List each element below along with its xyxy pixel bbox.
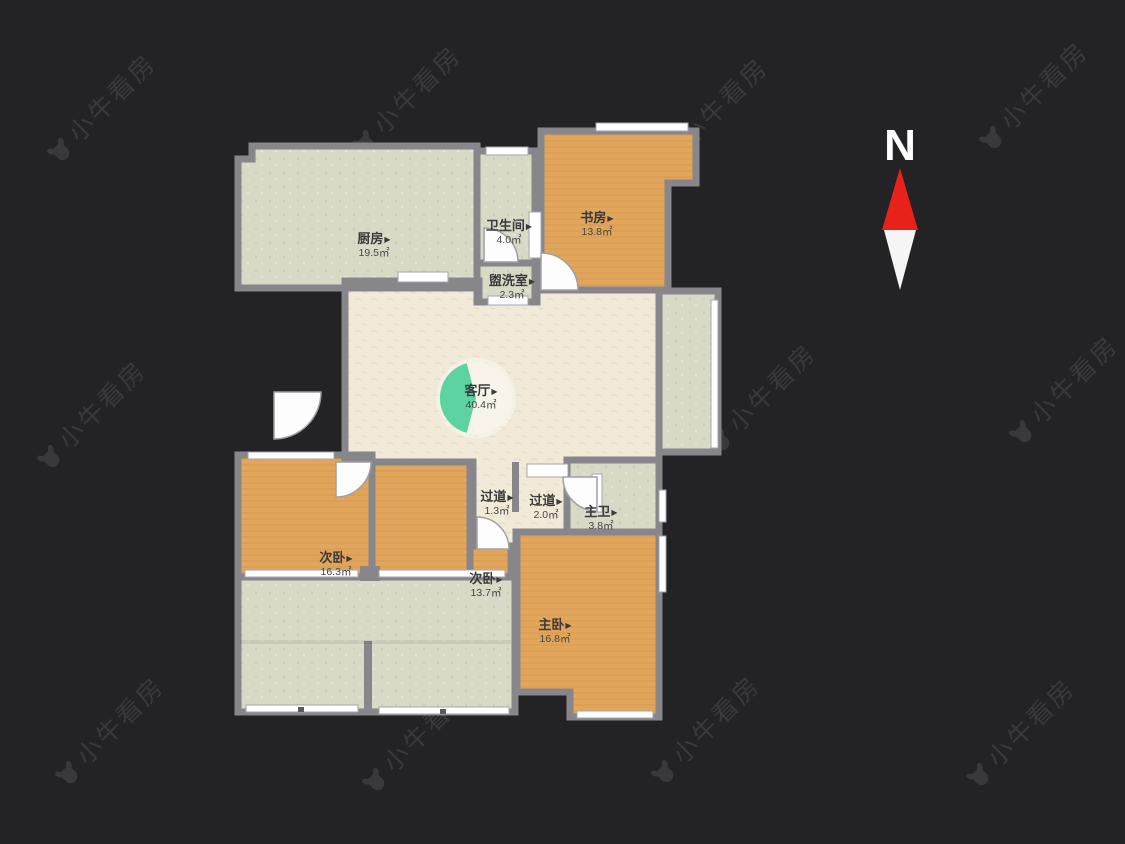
room-label-kitchen: 厨房▶ 19.5㎡	[357, 231, 390, 259]
room-label-washroom: 盥洗室▶ 2.3㎡	[489, 273, 535, 301]
room-label-living: 客厅▶ 40.4㎡	[464, 383, 497, 411]
window-handle	[298, 707, 304, 712]
wall-balcony-divider	[364, 641, 372, 714]
label-marker-icon: ▶	[611, 508, 617, 517]
label-marker-icon: ▶	[491, 387, 497, 396]
room-label-master-bath: 主卫▶ 3.8㎡	[584, 504, 617, 532]
room-east-balcony	[659, 291, 718, 452]
room-label-corridor-2: 过道▶ 2.0㎡	[529, 493, 562, 521]
room-label-study: 书房▶ 13.8㎡	[580, 210, 613, 238]
label-marker-icon: ▶	[526, 222, 532, 231]
label-marker-icon: ▶	[556, 497, 562, 506]
north-arrow	[882, 168, 918, 290]
room-label-corridor-1: 过道▶ 1.3㎡	[480, 489, 513, 517]
label-marker-icon: ▶	[496, 575, 502, 584]
floorplan-page: 小牛看房 小牛看房 小牛看房 小牛看房 小牛看房 小牛看房 小牛看房 小牛看房 …	[0, 0, 1125, 844]
floorplan-drawing	[0, 0, 1125, 844]
room-label-bedroom-left: 次卧▶ 16.3㎡	[319, 550, 352, 578]
label-marker-icon: ▶	[529, 277, 535, 286]
label-marker-icon: ▶	[384, 235, 390, 244]
entry-door	[274, 392, 321, 439]
label-marker-icon: ▶	[507, 493, 513, 502]
room-label-bathroom: 卫生间▶ 4.0㎡	[486, 218, 532, 246]
balcony-floor-line	[240, 640, 511, 644]
label-marker-icon: ▶	[565, 621, 571, 630]
window-handle	[440, 709, 446, 714]
north-label: N	[884, 121, 916, 171]
room-label-master-bedroom: 主卧▶ 16.8㎡	[538, 617, 571, 645]
room-kitchen	[238, 146, 477, 288]
label-marker-icon: ▶	[346, 554, 352, 563]
label-marker-icon: ▶	[607, 214, 613, 223]
room-label-bedroom-middle: 次卧▶ 13.7㎡	[469, 571, 502, 599]
wall-stub	[360, 566, 380, 581]
